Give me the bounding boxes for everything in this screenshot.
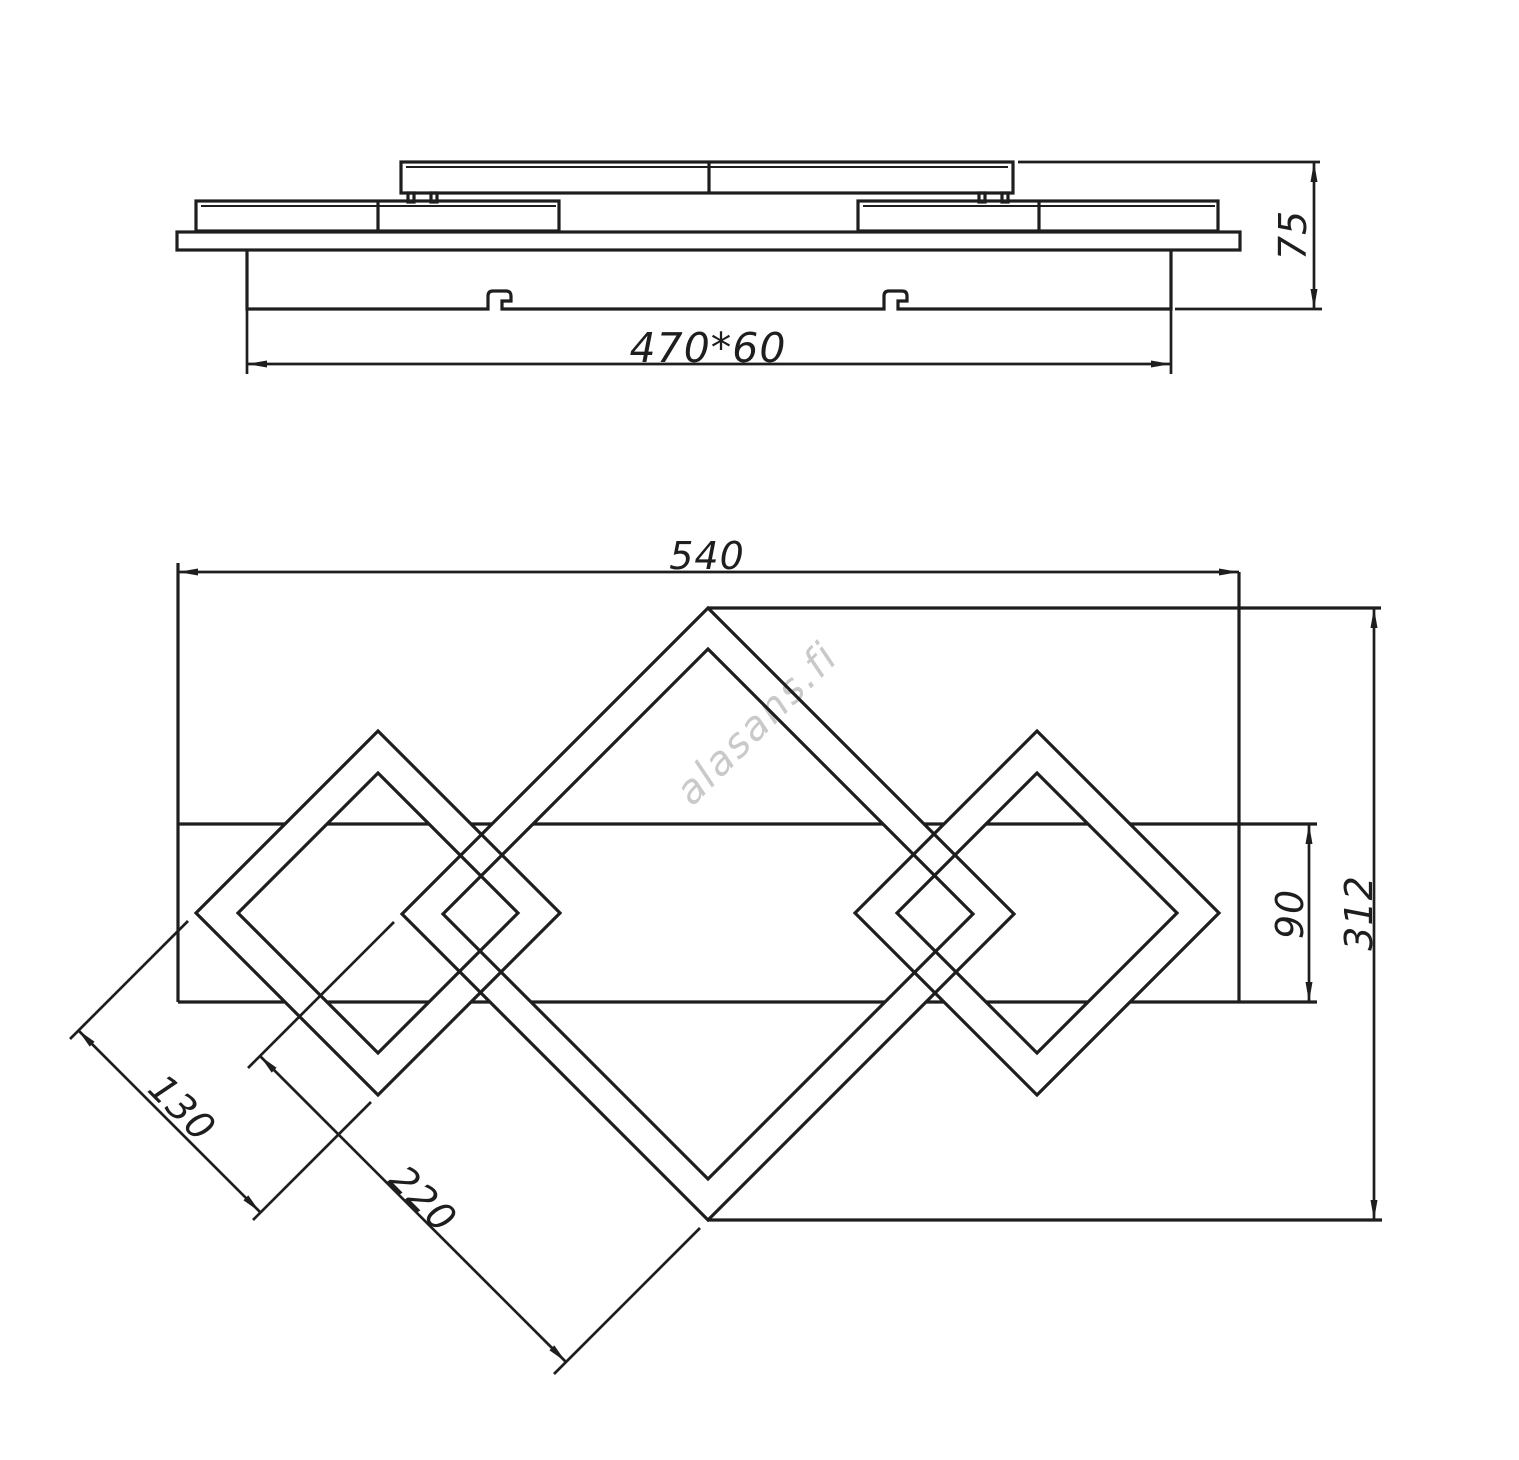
dim-470x60-label: 470*60 xyxy=(630,324,787,372)
large-square-frame-body xyxy=(402,608,1014,1220)
dim-75-arrow-bottom xyxy=(1311,289,1318,309)
right-square-outer xyxy=(855,731,1219,1095)
dim-90-label: 90 xyxy=(1268,889,1312,939)
dim-130-ext-upper xyxy=(70,921,188,1039)
side-view: 470*60 75 xyxy=(177,162,1322,374)
side-base-plate xyxy=(177,232,1240,250)
dim-220-ext-lower xyxy=(554,1228,700,1374)
dim-130-label: 130 xyxy=(140,1066,225,1151)
technical-drawing: 470*60 75 alasans.fi xyxy=(0,0,1519,1460)
dim-220-label: 220 xyxy=(381,1157,466,1242)
dim-540-label: 540 xyxy=(669,534,745,578)
dim-130-arrow-lower xyxy=(243,1195,260,1212)
dim-220-arrow-lower xyxy=(549,1345,566,1362)
left-square-frame-body xyxy=(196,731,560,1095)
dim-470x60: 470*60 xyxy=(247,309,1171,374)
dim-130: 130 xyxy=(70,921,371,1220)
dim-90-arrow-bottom xyxy=(1306,982,1313,1002)
left-square-outer xyxy=(196,731,560,1095)
side-mounting-bracket xyxy=(247,250,1171,309)
large-square-outer xyxy=(402,608,1014,1220)
dim-220-arrow-upper xyxy=(260,1056,277,1073)
dim-540-arrow-right xyxy=(1219,569,1239,576)
dim-470x60-arrow-right xyxy=(1151,361,1171,368)
dim-312-arrow-bottom xyxy=(1371,1200,1378,1220)
right-square-inner xyxy=(897,773,1177,1053)
dim-75-label: 75 xyxy=(1271,210,1315,260)
dim-312-arrow-top xyxy=(1371,608,1378,628)
dim-312: 312 xyxy=(1337,608,1381,1220)
dim-90-arrow-top xyxy=(1306,824,1313,844)
dim-540: 540 xyxy=(178,534,1239,578)
dim-130-ext-lower xyxy=(253,1102,371,1220)
dim-90: 90 xyxy=(1268,824,1313,1002)
left-square-inner xyxy=(238,773,518,1053)
dim-470x60-arrow-left xyxy=(247,361,267,368)
plan-view: alasans.fi 540 312 90 xyxy=(70,534,1382,1374)
dim-312-label: 312 xyxy=(1337,875,1381,951)
dim-540-arrow-left xyxy=(178,569,198,576)
dim-130-arrow-upper xyxy=(78,1030,95,1047)
right-square-frame-body xyxy=(855,731,1219,1095)
drawing-sheet: 470*60 75 alasans.fi xyxy=(0,0,1519,1460)
dim-75-arrow-top xyxy=(1311,162,1318,182)
